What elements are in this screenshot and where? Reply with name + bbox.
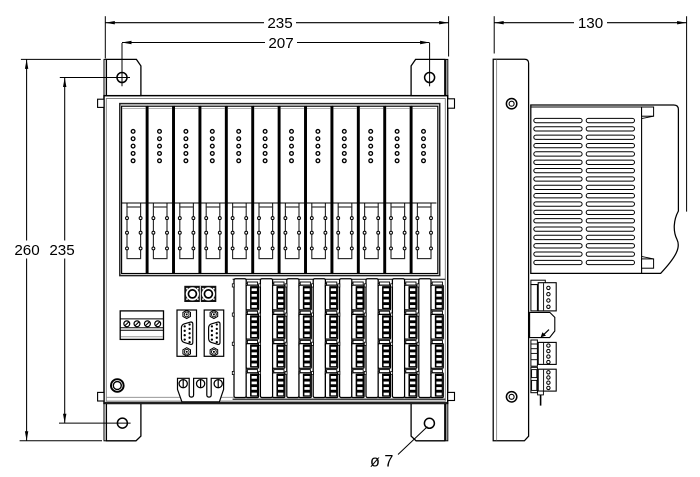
svg-text:207: 207 <box>268 35 293 52</box>
svg-text:130: 130 <box>578 15 603 32</box>
svg-text:ø 7: ø 7 <box>370 453 393 471</box>
svg-text:235: 235 <box>267 15 292 32</box>
svg-text:260: 260 <box>14 242 39 259</box>
svg-text:235: 235 <box>49 242 74 259</box>
